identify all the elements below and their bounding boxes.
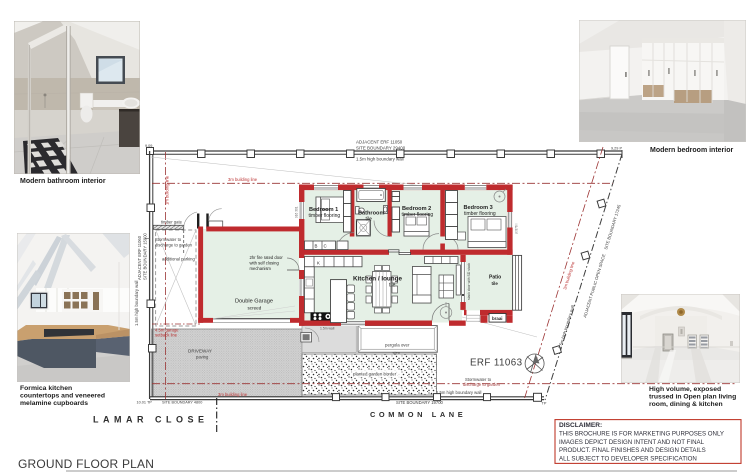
svg-text:timber flooring: timber flooring xyxy=(309,213,341,219)
svg-text:timber flooring: timber flooring xyxy=(464,211,496,217)
svg-text:1m building line: 1m building line xyxy=(165,175,170,205)
svg-text:timber gate: timber gate xyxy=(161,220,183,225)
svg-text:tile: tile xyxy=(389,283,396,289)
svg-text:ADJACENT ERF 11060: ADJACENT ERF 11060 xyxy=(137,235,142,280)
svg-text:stack door with SD stack: stack door with SD stack xyxy=(467,263,471,300)
svg-text:timber flooring: timber flooring xyxy=(402,212,434,218)
svg-text:mechanism: mechanism xyxy=(250,266,272,271)
svg-text:IMAGES DEPICT DESIGN INTENT AN: IMAGES DEPICT DESIGN INTENT AND NOT FINA… xyxy=(559,439,705,446)
svg-text:LAMAR CLOSE: LAMAR CLOSE xyxy=(93,415,209,425)
svg-text:9,09: 9,09 xyxy=(145,144,152,148)
svg-text:st 876 l: st 876 l xyxy=(515,223,519,234)
svg-text:with self closing: with self closing xyxy=(250,260,280,265)
svg-text:DISCLAIMER:: DISCLAIMER: xyxy=(559,422,602,429)
svg-text:ERF 11063: ERF 11063 xyxy=(470,358,523,369)
svg-text:1.5m high boundary wall: 1.5m high boundary wall xyxy=(134,281,139,326)
svg-text:K: K xyxy=(317,261,320,266)
svg-text:SITE BOUNDARY 4800: SITE BOUNDARY 4800 xyxy=(162,401,202,405)
svg-text:3m building line: 3m building line xyxy=(228,177,258,182)
svg-text:tile: tile xyxy=(366,217,373,223)
svg-text:3m building line: 3m building line xyxy=(218,392,248,397)
svg-text:9,29 P: 9,29 P xyxy=(611,147,622,151)
svg-text:planted garden border: planted garden border xyxy=(353,372,397,377)
svg-text:discharge to garden: discharge to garden xyxy=(463,382,501,387)
svg-text:1.5m wall: 1.5m wall xyxy=(320,327,335,331)
svg-text:pergola over: pergola over xyxy=(385,343,410,348)
svg-text:2hr fire rated door: 2hr fire rated door xyxy=(250,255,284,260)
svg-text:916 301: 916 301 xyxy=(295,206,299,218)
svg-text:additional parking: additional parking xyxy=(162,257,195,262)
svg-text:paving: paving xyxy=(196,355,209,360)
svg-text:SITE BOUNDARY 19700: SITE BOUNDARY 19700 xyxy=(396,400,444,405)
svg-text:Patio: Patio xyxy=(489,275,501,281)
svg-text:TP: TP xyxy=(542,402,547,406)
svg-text:Modern bathroom interior: Modern bathroom interior xyxy=(20,178,106,185)
svg-text:braai: braai xyxy=(492,316,503,321)
svg-text:SITE BOUNDARY 15900: SITE BOUNDARY 15900 xyxy=(143,232,148,280)
svg-text:B: B xyxy=(315,244,318,249)
svg-text:room, dining & kitchen: room, dining & kitchen xyxy=(649,401,723,408)
svg-text:SITE BOUNDARY 29400: SITE BOUNDARY 29400 xyxy=(356,146,406,151)
svg-text:C: C xyxy=(324,244,327,249)
svg-text:GROUND FLOOR PLAN: GROUND FLOOR PLAN xyxy=(18,457,154,471)
svg-text:screed: screed xyxy=(248,306,262,311)
svg-text:COMMON LANE: COMMON LANE xyxy=(370,410,466,419)
svg-text:Double Garage: Double Garage xyxy=(235,299,273,305)
svg-text:PRODUCT. FINAL FINISHES AND DE: PRODUCT. FINAL FINISHES AND DESIGN DETAI… xyxy=(559,447,706,454)
svg-text:ADJACENT ERF 11050: ADJACENT ERF 11050 xyxy=(356,140,403,145)
svg-text:1.5m high boundary wall: 1.5m high boundary wall xyxy=(356,157,404,162)
svg-text:THIS BROCHURE IS FOR MARKETING: THIS BROCHURE IS FOR MARKETING PURPOSES … xyxy=(559,431,724,438)
svg-text:countertops and veneered: countertops and veneered xyxy=(20,393,105,400)
svg-text:Stormwater to: Stormwater to xyxy=(155,237,182,242)
svg-text:1.5m high boundary wall: 1.5m high boundary wall xyxy=(436,390,481,395)
svg-text:DRIVEWAY: DRIVEWAY xyxy=(188,349,212,354)
svg-text:discharge to garden: discharge to garden xyxy=(155,243,193,248)
svg-text:ALL SUBJECT TO DEVELOPER SPECI: ALL SUBJECT TO DEVELOPER SPECIFICATION xyxy=(559,455,697,462)
svg-text:Modern bedroom interior: Modern bedroom interior xyxy=(650,147,734,154)
svg-text:trussed in Open plan living: trussed in Open plan living xyxy=(649,394,736,401)
svg-text:Formica kitchen: Formica kitchen xyxy=(20,385,72,392)
svg-text:tile: tile xyxy=(492,281,499,286)
svg-text:melamine cupboards: melamine cupboards xyxy=(20,400,88,407)
svg-text:setback line: setback line xyxy=(155,333,178,338)
svg-text:10.01 TP: 10.01 TP xyxy=(137,401,153,405)
svg-text:High volume, exposed: High volume, exposed xyxy=(649,386,721,393)
svg-text:Kitchen / lounge: Kitchen / lounge xyxy=(353,276,402,283)
